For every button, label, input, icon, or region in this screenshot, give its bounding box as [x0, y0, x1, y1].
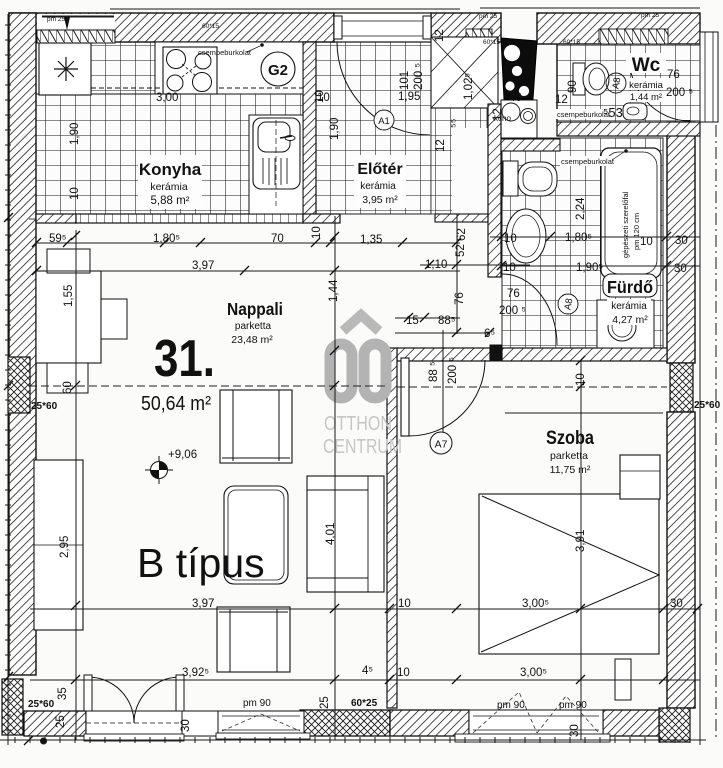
svg-text:3,97: 3,97 [192, 260, 214, 272]
svg-text:25: 25 [319, 696, 331, 709]
svg-text:Wc: Wc [632, 55, 661, 76]
svg-text:pm 90: pm 90 [559, 700, 587, 711]
svg-text:3,00: 3,00 [156, 92, 178, 104]
svg-text:10: 10 [317, 92, 330, 104]
svg-text:parketta: parketta [235, 321, 272, 332]
svg-text:15: 15 [406, 315, 419, 327]
svg-text:Konyha: Konyha [139, 160, 202, 179]
svg-text:kerámia: kerámia [629, 80, 664, 91]
svg-text:3,97: 3,97 [192, 598, 214, 610]
svg-text:3,92⁵: 3,92⁵ [182, 667, 209, 679]
svg-text:200 ⁵: 200 ⁵ [447, 357, 459, 384]
svg-text:5,88 m²: 5,88 m² [151, 195, 190, 207]
svg-text:pm 25: pm 25 [47, 16, 65, 23]
svg-text:23,48 m²: 23,48 m² [231, 334, 273, 346]
svg-text:90: 90 [567, 80, 579, 93]
svg-text:10: 10 [640, 236, 653, 248]
svg-text:10: 10 [504, 233, 517, 245]
svg-text:⁵53: ⁵53 [603, 105, 623, 120]
svg-text:12: 12 [555, 94, 568, 106]
svg-text:52: 52 [455, 244, 467, 257]
svg-text:11,75 m²: 11,75 m² [550, 464, 591, 476]
svg-text:30: 30 [675, 235, 688, 247]
svg-text:6⁵: 6⁵ [484, 328, 495, 340]
svg-text:3,00⁵: 3,00⁵ [520, 667, 547, 679]
svg-text:1,02⁵: 1,02⁵ [463, 73, 475, 100]
svg-text:25*60: 25*60 [694, 400, 721, 411]
svg-text:A1: A1 [378, 116, 390, 127]
svg-text:Szoba: Szoba [546, 428, 594, 449]
svg-text:60*15: 60*15 [202, 23, 219, 30]
svg-text:Előtér: Előtér [357, 161, 402, 178]
svg-text:1,80⁵: 1,80⁵ [153, 233, 180, 245]
svg-text:101: 101 [399, 71, 411, 90]
svg-text:50,64 m²: 50,64 m² [141, 393, 211, 415]
svg-text:+9,06: +9,06 [168, 449, 197, 461]
svg-text:12: 12 [434, 29, 446, 42]
svg-text:1,80⁵: 1,80⁵ [565, 232, 592, 244]
svg-text:kerámia: kerámia [611, 301, 647, 312]
svg-text:62: 62 [456, 228, 468, 241]
svg-text:76: 76 [454, 292, 466, 305]
svg-text:pm 90: pm 90 [243, 698, 271, 709]
svg-text:76: 76 [507, 288, 520, 300]
svg-text:1,44: 1,44 [328, 279, 340, 302]
svg-text:60*15: 60*15 [563, 39, 580, 46]
svg-text:30: 30 [569, 724, 581, 737]
svg-text:2,95: 2,95 [59, 536, 71, 558]
svg-text:3,00⁵: 3,00⁵ [522, 598, 549, 610]
svg-text:60*15: 60*15 [483, 39, 500, 46]
svg-text:gépészeti szerelőfal: gépészeti szerelőfal [621, 191, 630, 258]
svg-text:pm 25: pm 25 [641, 12, 659, 19]
svg-text:1,55: 1,55 [63, 285, 75, 307]
svg-text:35: 35 [57, 687, 69, 700]
svg-text:OTTHON: OTTHON [324, 413, 392, 435]
svg-text:70: 70 [271, 233, 284, 245]
svg-text:kcho: kcho [494, 114, 511, 123]
svg-text:1,44 m²: 1,44 m² [630, 92, 662, 103]
svg-text:200 ⁵: 200 ⁵ [413, 63, 425, 90]
svg-text:10: 10 [575, 373, 587, 386]
svg-text:200 ⁵: 200 ⁵ [499, 305, 526, 317]
svg-text:10: 10 [397, 667, 410, 679]
svg-text:10: 10 [69, 187, 81, 200]
svg-text:3,91: 3,91 [575, 530, 587, 552]
svg-text:A7: A7 [435, 439, 448, 451]
svg-text:1,95: 1,95 [398, 91, 420, 103]
svg-text:kerámia: kerámia [150, 181, 188, 193]
svg-text:88⁵: 88⁵ [438, 315, 456, 327]
svg-text:2,24: 2,24 [575, 197, 587, 220]
svg-text:30: 30 [670, 598, 683, 610]
svg-text:10: 10 [503, 262, 516, 274]
svg-text:3,95 m²: 3,95 m² [362, 194, 398, 206]
svg-text:60*25: 60*25 [351, 698, 378, 709]
svg-text:1,10: 1,10 [425, 259, 447, 271]
svg-text:10: 10 [311, 226, 323, 239]
svg-text:parketta: parketta [550, 450, 588, 462]
svg-text:40: 40 [509, 92, 522, 104]
svg-text:10: 10 [398, 598, 411, 610]
svg-text:⁵⁵: ⁵⁵ [449, 118, 461, 128]
svg-text:30: 30 [674, 263, 687, 275]
svg-text:4⁵: 4⁵ [362, 665, 373, 677]
svg-text:200 ⁵: 200 ⁵ [666, 87, 693, 99]
svg-text:31.: 31. [154, 330, 215, 388]
svg-text:12: 12 [435, 139, 447, 152]
svg-text:pm 25: pm 25 [479, 13, 497, 20]
svg-text:A8: A8 [563, 297, 576, 310]
svg-text:60: 60 [62, 381, 74, 394]
svg-text:30: 30 [180, 719, 192, 732]
svg-text:csempeburkolat: csempeburkolat [561, 157, 615, 166]
svg-text:csempeburkolat: csempeburkolat [198, 48, 252, 57]
svg-text:1,90: 1,90 [69, 123, 81, 145]
svg-text:25*60: 25*60 [31, 401, 58, 412]
svg-text:pm 90: pm 90 [497, 700, 525, 711]
svg-text:1,90⁵: 1,90⁵ [576, 262, 603, 274]
svg-text:76: 76 [667, 69, 680, 81]
svg-text:1,35: 1,35 [360, 234, 382, 246]
svg-text:A8: A8 [611, 76, 624, 89]
svg-text:88 ⁵: 88 ⁵ [428, 361, 440, 382]
svg-text:B típus: B típus [137, 540, 265, 586]
svg-text:25*60: 25*60 [28, 699, 55, 710]
svg-text:59⁵: 59⁵ [49, 233, 67, 245]
svg-text:Nappali: Nappali [227, 299, 283, 319]
svg-text:4,01: 4,01 [325, 523, 337, 545]
svg-text:1,90: 1,90 [329, 118, 341, 140]
svg-text:Fürdő: Fürdő [607, 277, 653, 297]
svg-text:4,27 m²: 4,27 m² [612, 314, 648, 326]
svg-text:25: 25 [55, 715, 67, 728]
svg-text:G2: G2 [268, 62, 288, 79]
svg-text:kerámia: kerámia [360, 181, 396, 192]
